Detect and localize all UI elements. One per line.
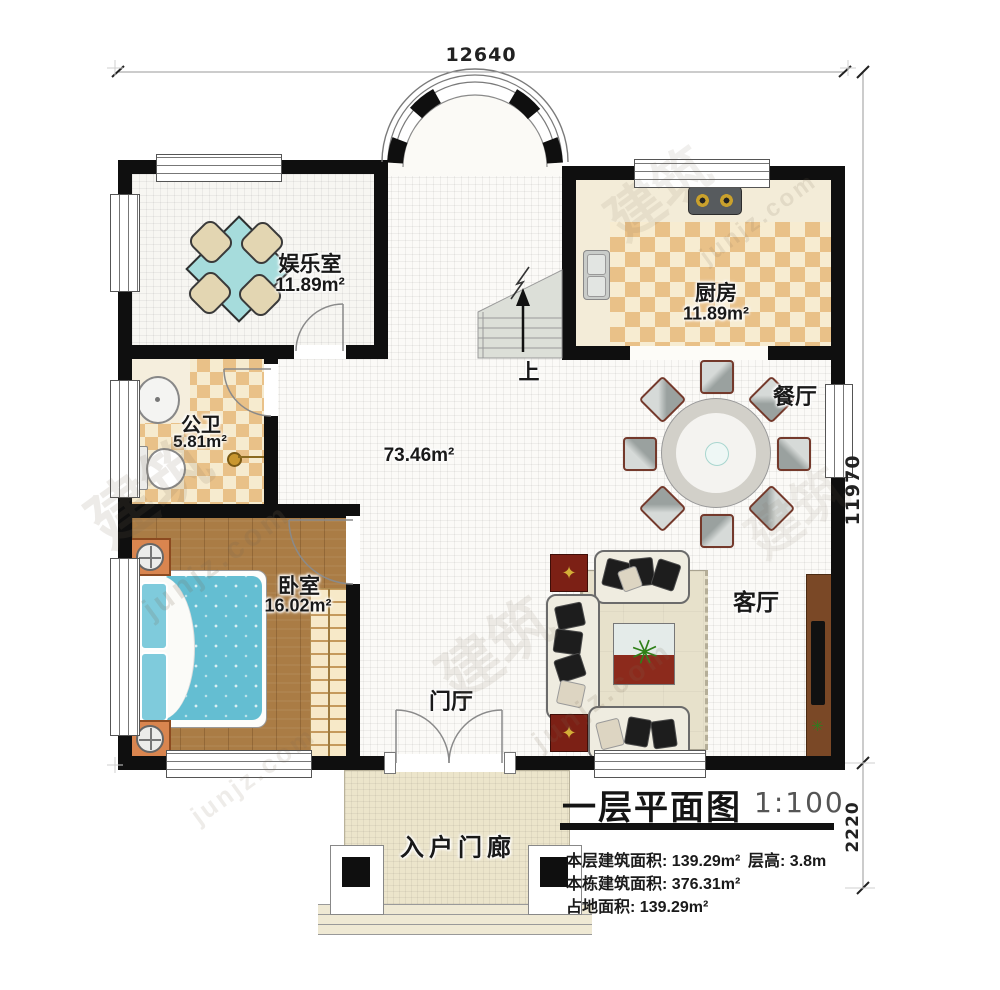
sofa-left: [546, 594, 600, 720]
wall-entertainment-bottom: [118, 345, 388, 359]
coffee-table: ✳: [613, 623, 675, 685]
room-label-entertainment: 娱乐室: [279, 248, 342, 278]
lamp: [136, 725, 164, 753]
window: [634, 159, 770, 188]
hall-area-label: 73.46m²: [384, 445, 455, 467]
dining-table: [661, 398, 771, 508]
dining-chair: [623, 437, 657, 471]
wall-entertainment-right: [374, 160, 388, 359]
plan-scale: 1:100: [754, 786, 845, 819]
opening-kitchen: [630, 346, 768, 360]
room-label-living: 客厅: [733, 583, 779, 617]
burner: [720, 194, 733, 207]
room-area-kitchen: 11.89m²: [683, 304, 749, 325]
pillow: [140, 652, 168, 722]
lamp: [136, 543, 164, 571]
stat-building-area: 本栋建筑面积: 376.31m²: [566, 870, 740, 894]
room-area-bathroom: 5.81m²: [173, 432, 227, 452]
stat-footprint: 占地面积: 139.29m²: [566, 893, 708, 917]
door-opening-foyer: [392, 754, 506, 772]
room-area-bedroom: 16.02m²: [264, 596, 331, 617]
foyer-jamb: [504, 752, 516, 774]
dining-table-center: [705, 442, 729, 466]
dim-right: 11970: [842, 454, 864, 525]
side-table: ✦: [550, 714, 588, 752]
tv-plant-icon: ✳: [811, 717, 824, 735]
kitchen-sink: [583, 250, 610, 300]
stat-story-height: 层高: 3.8m: [748, 847, 826, 871]
door-knob: [227, 452, 242, 467]
door-opening-bedroom: [346, 516, 360, 584]
window: [110, 558, 140, 736]
plant-icon: ✳: [621, 621, 668, 685]
window: [110, 194, 140, 292]
dining-chair: [700, 360, 734, 394]
porch-column-right-core: [540, 857, 568, 887]
dining-chair: [700, 514, 734, 548]
bay-gap-floor: [388, 156, 562, 176]
sink-drain: [155, 397, 160, 402]
tv-cabinet: ✳: [806, 574, 834, 758]
door-opening-bathroom: [264, 364, 278, 416]
pillow: [140, 582, 168, 650]
sink-basin: [587, 276, 606, 297]
stairs-up-label: 上: [519, 356, 540, 386]
window: [110, 380, 140, 498]
wall-kitchen-left: [562, 166, 576, 360]
title-underline: [560, 823, 834, 830]
window: [166, 750, 312, 778]
stove: [688, 186, 742, 215]
plan-title: 一层平面图: [562, 780, 742, 829]
sofa-top: [594, 550, 690, 604]
bay-window: [382, 69, 568, 167]
bathroom-sink: [136, 376, 180, 424]
room-label-kitchen: 厨房: [695, 277, 737, 307]
room-label-foyer: 门厅: [429, 684, 473, 716]
foyer-jamb: [384, 752, 396, 774]
door-opening-entertainment: [294, 345, 346, 359]
dim-top: 12640: [445, 44, 516, 66]
window: [594, 750, 706, 778]
room-label-dining: 餐厅: [773, 379, 817, 411]
floor-plan: ✦ ✦ ✳ ✳: [0, 0, 1000, 990]
window: [156, 154, 282, 182]
burner: [696, 194, 709, 207]
dim-porch: 2220: [843, 801, 863, 852]
sink-basin: [587, 254, 606, 275]
wall-bedroom-top: [118, 504, 360, 518]
room-label-porch: 入户门廊: [400, 828, 516, 863]
tv-screen: [811, 621, 825, 705]
porch-column-left-core: [342, 857, 370, 887]
stat-floor-area: 本层建筑面积: 139.29m²: [566, 847, 740, 871]
dining-chair: [777, 437, 811, 471]
room-area-entertainment: 11.89m²: [275, 275, 345, 297]
side-table: ✦: [550, 554, 588, 592]
